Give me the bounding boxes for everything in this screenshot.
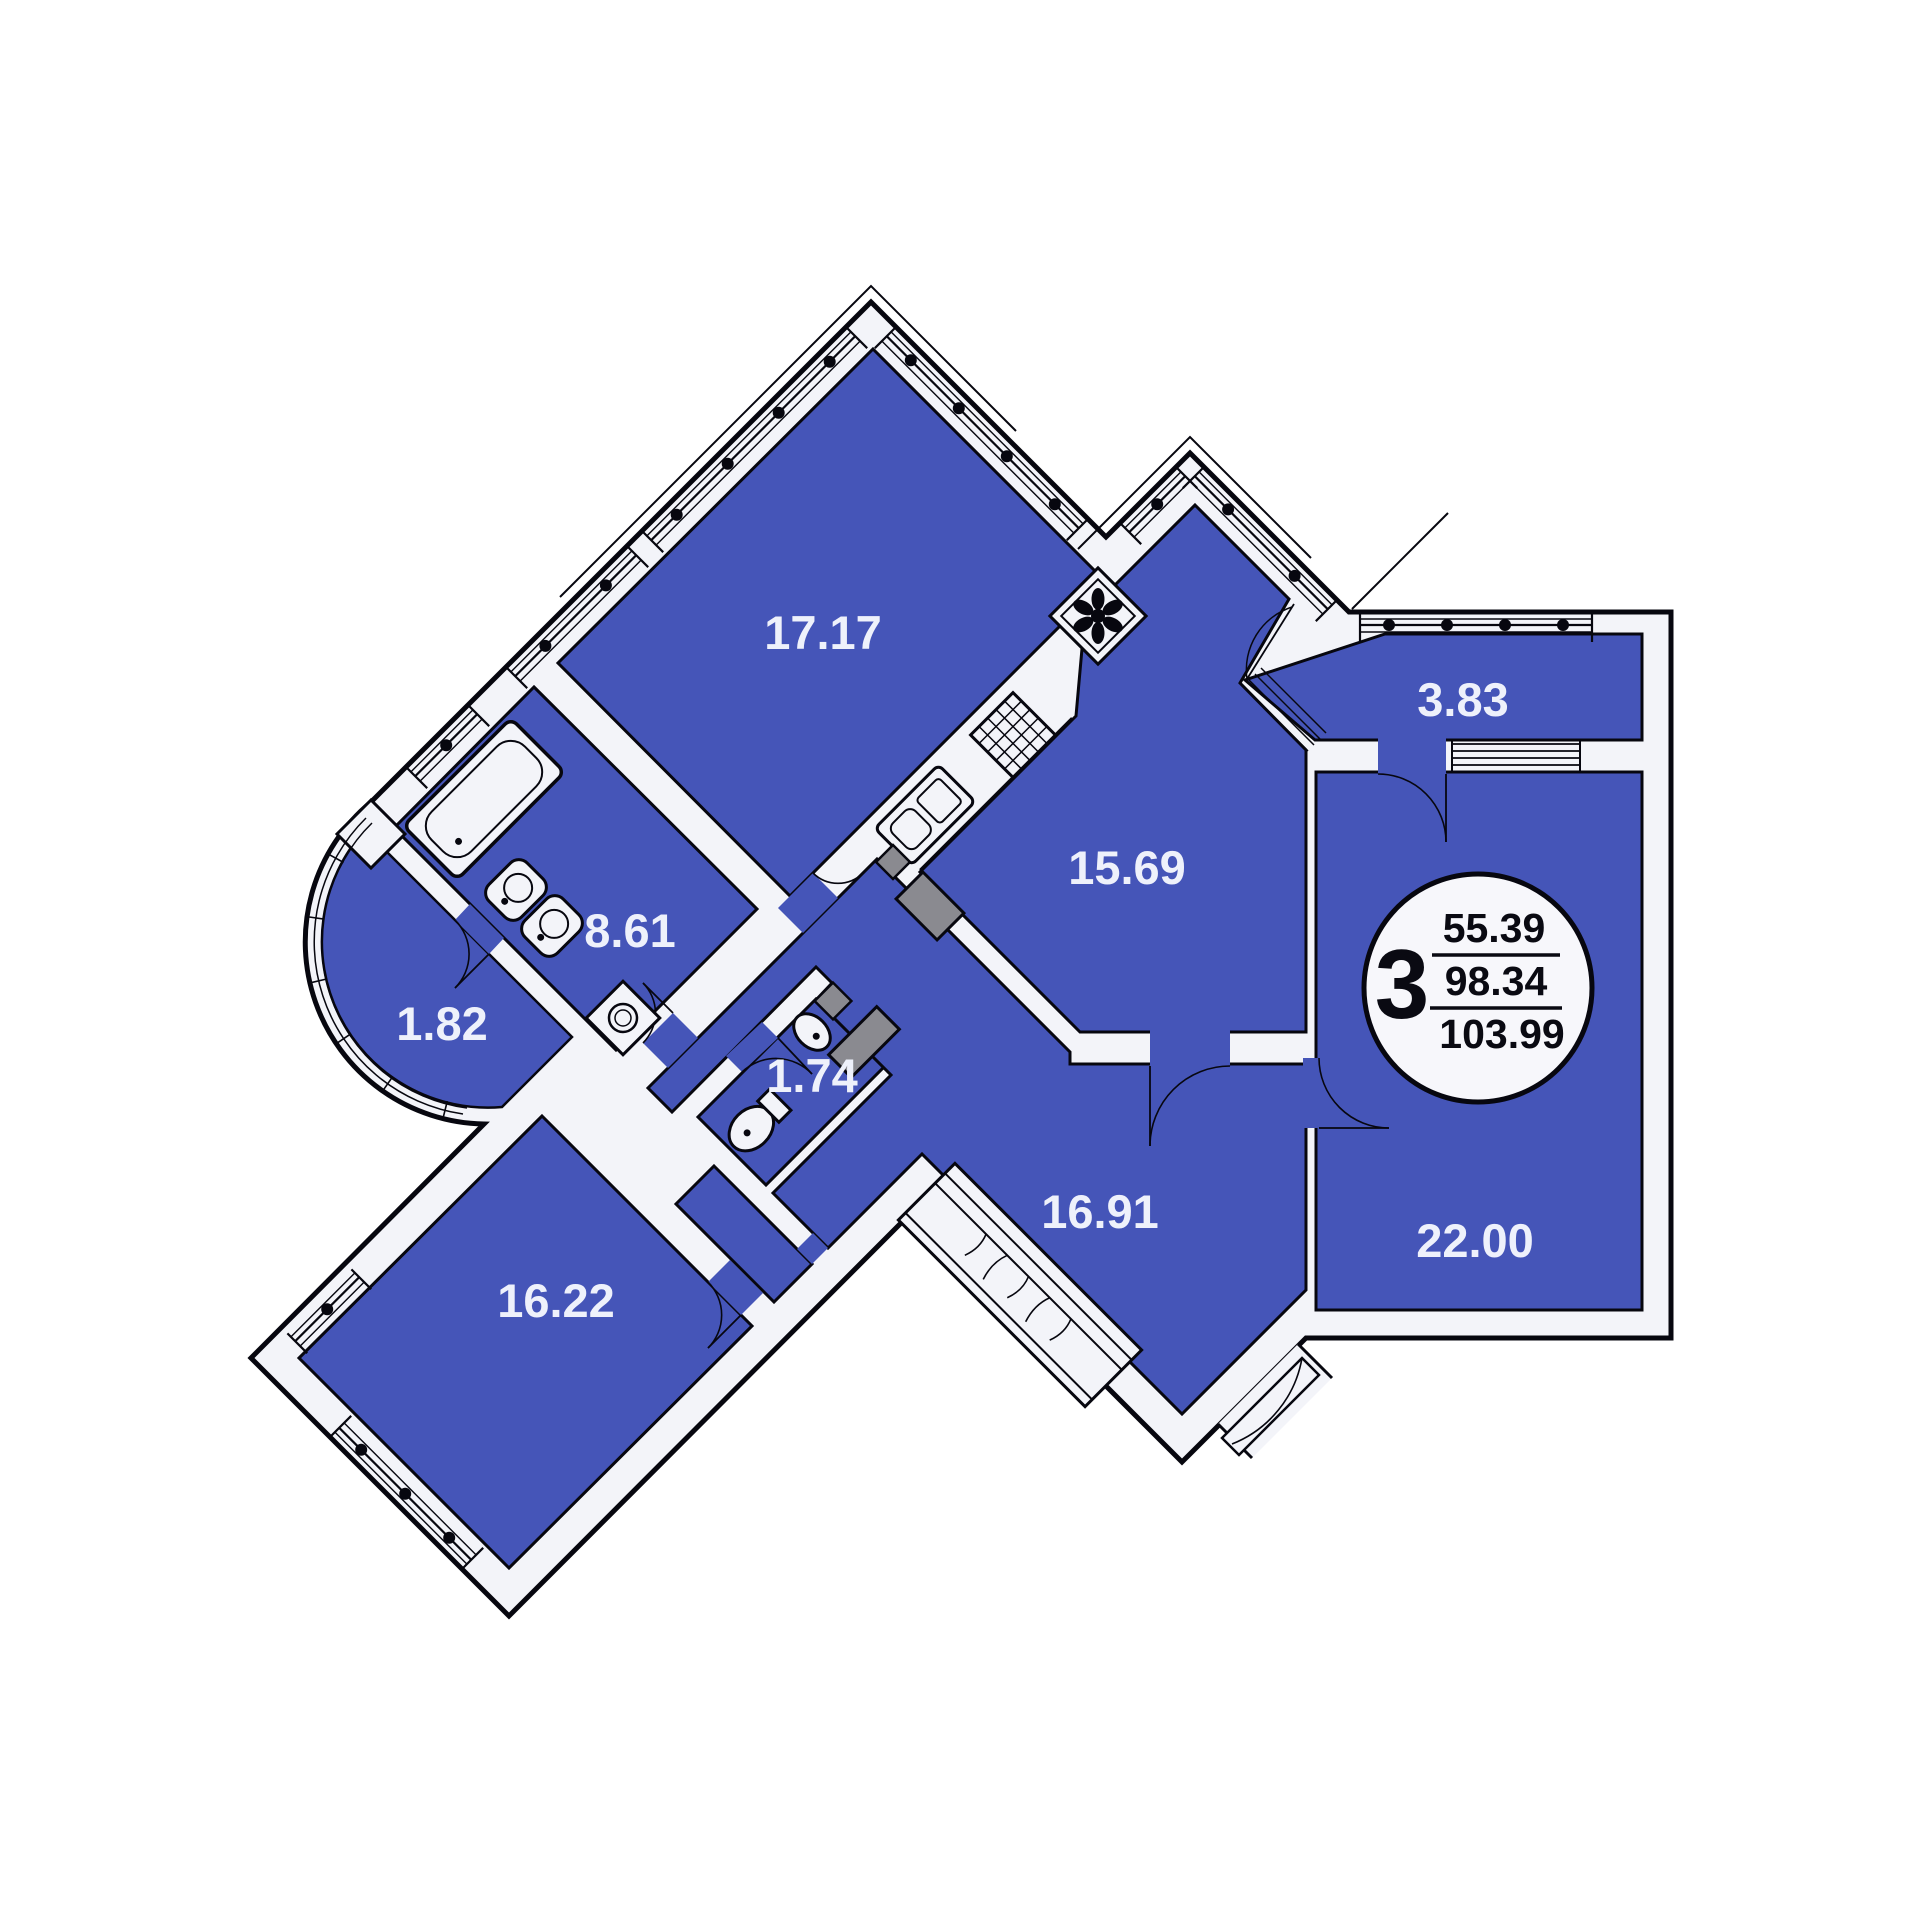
svg-text:3.83: 3.83 bbox=[1417, 673, 1508, 726]
svg-text:1.74: 1.74 bbox=[766, 1049, 857, 1102]
svg-text:98.34: 98.34 bbox=[1445, 958, 1548, 1004]
svg-text:15.69: 15.69 bbox=[1068, 841, 1186, 894]
svg-text:16.22: 16.22 bbox=[497, 1274, 615, 1327]
svg-text:8.61: 8.61 bbox=[584, 904, 675, 957]
svg-text:103.99: 103.99 bbox=[1439, 1011, 1564, 1057]
svg-text:16.91: 16.91 bbox=[1041, 1185, 1159, 1238]
svg-text:1.82: 1.82 bbox=[396, 997, 487, 1050]
svg-text:17.17: 17.17 bbox=[764, 606, 882, 659]
svg-text:55.39: 55.39 bbox=[1443, 905, 1546, 951]
svg-text:22.00: 22.00 bbox=[1416, 1214, 1534, 1267]
svg-text:3: 3 bbox=[1375, 929, 1430, 1039]
